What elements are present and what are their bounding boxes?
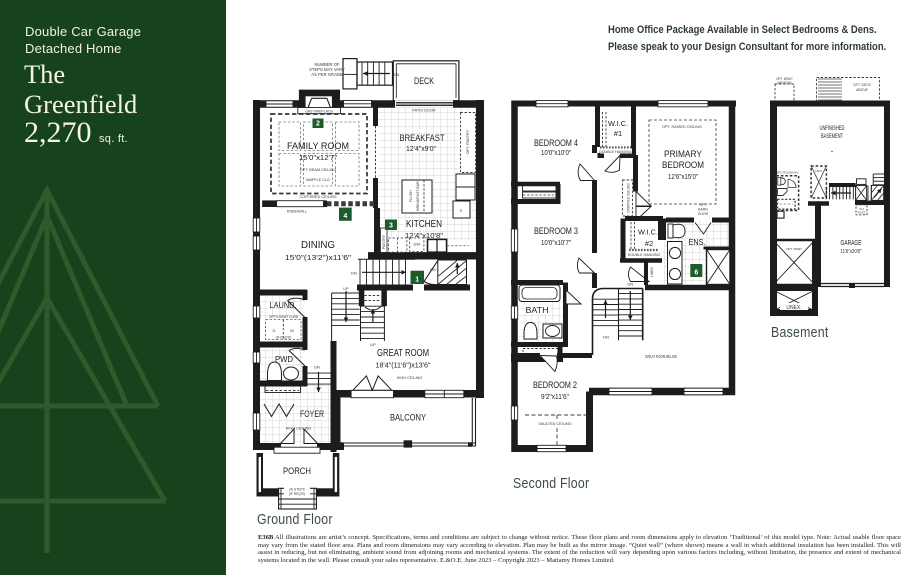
svg-text:ENS.: ENS. — [689, 237, 706, 247]
svg-text:DN: DN — [351, 271, 357, 276]
svg-text:FLUSH: FLUSH — [409, 190, 413, 202]
svg-text:DROPPED CEILING: DROPPED CEILING — [627, 183, 631, 213]
svg-text:BASEMENT: BASEMENT — [821, 133, 843, 140]
svg-text:BEDROOM: BEDROOM — [662, 160, 704, 171]
svg-text:GREAT ROOM: GREAT ROOM — [377, 347, 429, 359]
svg-text:DN: DN — [627, 282, 633, 287]
svg-text:12'4"x10'8": 12'4"x10'8" — [405, 231, 443, 240]
svg-text:6: 6 — [694, 269, 698, 276]
svg-text:DN: DN — [314, 365, 320, 370]
svg-text:DECK: DECK — [414, 76, 434, 87]
svg-text:OPT. BEAM CEILING: OPT. BEAM CEILING — [300, 168, 337, 172]
svg-text:POST: POST — [858, 210, 866, 214]
svg-text:COFFERED CEILING: COFFERED CEILING — [299, 195, 336, 199]
svg-text:4: 4 — [343, 213, 347, 220]
svg-text:PORCH: PORCH — [283, 466, 311, 477]
svg-text:PRIMARY: PRIMARY — [664, 149, 703, 160]
svg-text:2: 2 — [316, 120, 320, 127]
svg-text:(IF REQ'D): (IF REQ'D) — [276, 336, 292, 340]
svg-text:OPT. BSMT: OPT. BSMT — [786, 247, 802, 251]
svg-text:DN: DN — [603, 335, 609, 340]
svg-text:PATIO DOOR: PATIO DOOR — [412, 109, 436, 113]
svg-text:HIGH CEILING: HIGH CEILING — [397, 376, 423, 380]
svg-text:FOYER: FOYER — [300, 409, 324, 420]
svg-text:12'4"x9'0": 12'4"x9'0" — [406, 144, 436, 153]
svg-text:11'6"x20'8": 11'6"x20'8" — [841, 249, 862, 255]
svg-text:BATH: BATH — [526, 305, 549, 315]
svg-text:W: W — [290, 328, 294, 333]
svg-text:10'0"x10'7": 10'0"x10'7" — [541, 238, 571, 247]
svg-text:FAMILY ROOM: FAMILY ROOM — [287, 141, 349, 152]
svg-text:BEDROOM 3: BEDROOM 3 — [534, 226, 578, 237]
svg-text:▲: ▲ — [831, 149, 834, 153]
svg-text:BARN: BARN — [698, 208, 708, 212]
svg-text:AS PER GRADE: AS PER GRADE — [311, 72, 343, 77]
svg-text:LINEN: LINEN — [650, 266, 654, 277]
svg-text:#2: #2 — [645, 239, 653, 248]
svg-text:ABOVE: ABOVE — [856, 88, 868, 92]
svg-text:OPT.: OPT. — [699, 203, 707, 207]
svg-text:DOOR: DOOR — [698, 212, 709, 216]
svg-text:OPT. PANTRY: OPT. PANTRY — [466, 129, 470, 154]
svg-text:BREAKFAST: BREAKFAST — [400, 133, 445, 144]
svg-text:D: D — [273, 328, 276, 333]
svg-text:3: 3 — [389, 222, 393, 229]
svg-text:VAULTED CEILING: VAULTED CEILING — [538, 422, 571, 426]
svg-text:WINDOW: WINDOW — [778, 81, 792, 85]
svg-text:10'0"x10'0": 10'0"x10'0" — [541, 148, 571, 157]
svg-text:UNFINISHED: UNFINISHED — [820, 125, 845, 132]
svg-text:BALCONY: BALCONY — [390, 413, 427, 424]
svg-text:DN: DN — [430, 268, 436, 272]
svg-text:12'6"x15'0": 12'6"x15'0" — [668, 172, 698, 181]
svg-text:#1: #1 — [614, 129, 622, 138]
svg-text:OPT. RAISED CEILING: OPT. RAISED CEILING — [662, 125, 702, 129]
svg-text:W.I.C.: W.I.C. — [638, 228, 658, 237]
svg-text:UP: UP — [370, 342, 376, 347]
svg-text:15'0"x12'7": 15'0"x12'7" — [299, 153, 337, 162]
svg-text:9'2"x11'6": 9'2"x11'6" — [541, 392, 569, 401]
svg-text:PANTRY: PANTRY — [382, 234, 386, 249]
svg-text:3PC ROUGH-IN: 3PC ROUGH-IN — [777, 171, 799, 175]
svg-text:(4) STEPS: (4) STEPS — [289, 488, 306, 492]
svg-text:DOUBLE HANGING: DOUBLE HANGING — [599, 150, 632, 154]
svg-text:1: 1 — [415, 276, 419, 283]
svg-text:15'0"(13'2")x11'6": 15'0"(13'2")x11'6" — [285, 253, 351, 262]
svg-text:UP: UP — [343, 286, 349, 291]
svg-text:BREAKFAST BAR: BREAKFAST BAR — [416, 181, 420, 211]
svg-text:KITCHEN: KITCHEN — [406, 219, 442, 230]
svg-text:GREAT ROOM BELOW: GREAT ROOM BELOW — [645, 354, 678, 359]
svg-text:GARAGE: GARAGE — [841, 240, 862, 247]
svg-text:DN: DN — [394, 72, 400, 77]
svg-text:OPT'D BSMT CURB: OPT'D BSMT CURB — [269, 315, 298, 319]
svg-text:OPT. DECK: OPT. DECK — [853, 83, 872, 87]
svg-text:(IF REQ'D): (IF REQ'D) — [289, 492, 305, 496]
svg-text:GAS FIREPLACE: GAS FIREPLACE — [305, 109, 333, 113]
svg-text:UNEX.: UNEX. — [786, 305, 801, 311]
svg-text:DOUBLE HANGING: DOUBLE HANGING — [628, 253, 661, 257]
svg-text:HIGH CEILING: HIGH CEILING — [286, 427, 312, 431]
svg-text:DW: DW — [413, 242, 420, 247]
svg-text:HWT: HWT — [815, 169, 822, 173]
svg-text:W.I.C.: W.I.C. — [608, 119, 628, 128]
svg-text:DINING: DINING — [301, 239, 335, 251]
svg-text:LAUND.: LAUND. — [270, 300, 297, 310]
svg-text:KNEEWALL: KNEEWALL — [287, 209, 308, 213]
svg-text:WAFFLE CLG: WAFFLE CLG — [306, 178, 330, 182]
svg-text:18'4"(11'6")x13'6": 18'4"(11'6")x13'6" — [376, 361, 431, 370]
svg-text:BEDROOM 2: BEDROOM 2 — [533, 380, 577, 391]
